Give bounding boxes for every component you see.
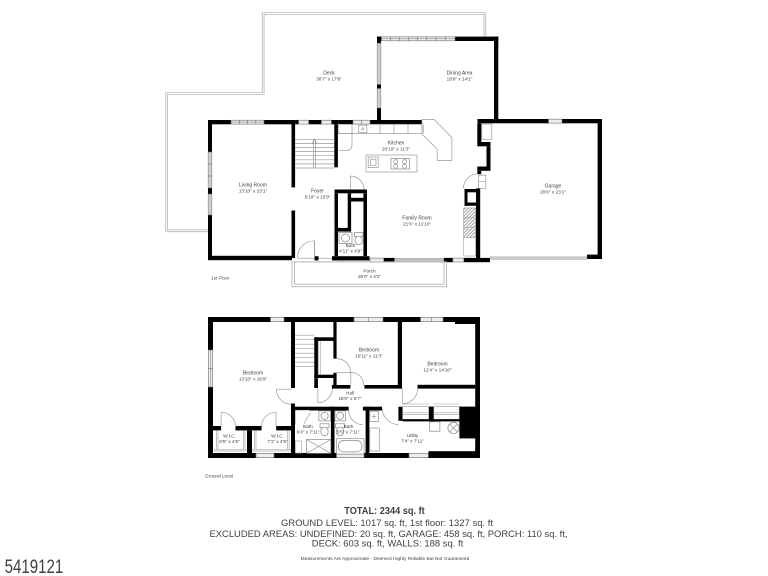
svg-text:20'10" x 11'3": 20'10" x 11'3" — [382, 147, 410, 152]
svg-text:7'1" x 4'6": 7'1" x 4'6" — [267, 439, 288, 444]
svg-text:12'4" x 14'10": 12'4" x 14'10" — [423, 367, 452, 372]
svg-text:6'10" x 15'9": 6'10" x 15'9" — [305, 195, 331, 200]
svg-text:5'5" x 7'11": 5'5" x 7'11" — [337, 429, 360, 434]
svg-text:7'4" x 7'11": 7'4" x 7'11" — [401, 438, 424, 443]
svg-text:4'11" x 4'9": 4'11" x 4'9" — [339, 248, 362, 253]
svg-text:19'9" x 14'1": 19'9" x 14'1" — [447, 77, 473, 82]
svg-text:5419121: 5419121 — [5, 557, 64, 576]
svg-text:6'4" x 7'11": 6'4" x 7'11" — [297, 429, 320, 434]
svg-text:1st Floor: 1st Floor — [211, 276, 230, 281]
svg-text:20'6" x 23'1": 20'6" x 23'1" — [540, 190, 566, 195]
svg-text:18'0" x 6'7": 18'0" x 6'7" — [338, 396, 361, 401]
svg-text:Bath: Bath — [344, 424, 354, 429]
svg-text:26'0" x 4'2": 26'0" x 4'2" — [358, 274, 381, 279]
svg-text:21'6" x 11'10": 21'6" x 11'10" — [403, 222, 431, 227]
svg-text:30'7" x 17'8": 30'7" x 17'8" — [316, 77, 342, 82]
svg-text:W.I.C.: W.I.C. — [223, 433, 236, 438]
svg-text:EXCLUDED AREAS: UNDEFINED: 20: EXCLUDED AREAS: UNDEFINED: 20 sq. ft, GA… — [210, 529, 568, 539]
svg-text:GROUND LEVEL: 1017 sq. ft, 1st: GROUND LEVEL: 1017 sq. ft, 1st floor: 13… — [281, 518, 493, 528]
svg-text:TOTAL: 2344 sq. ft: TOTAL: 2344 sq. ft — [344, 506, 425, 517]
svg-text:10'11" x 11'3": 10'11" x 11'3" — [355, 353, 383, 358]
svg-text:6'5" x 4'6": 6'5" x 4'6" — [219, 439, 240, 444]
svg-text:Ground Level: Ground Level — [205, 474, 233, 479]
svg-text:Hall: Hall — [346, 390, 354, 395]
svg-text:Porch: Porch — [363, 269, 376, 274]
svg-text:13'10" x 16'9": 13'10" x 16'9" — [239, 376, 268, 381]
svg-text:13'10" x 23'1": 13'10" x 23'1" — [239, 189, 268, 194]
svg-text:Measurements Are Approximate -: Measurements Are Approximate - Deemed Hi… — [301, 556, 470, 561]
svg-text:DECK: 603 sq. ft, WALLS: 188 s: DECK: 603 sq. ft, WALLS: 188 sq. ft — [312, 538, 464, 548]
svg-text:W.I.C.: W.I.C. — [271, 433, 284, 438]
svg-text:Bath: Bath — [303, 424, 313, 429]
svg-text:Utility: Utility — [407, 433, 419, 438]
